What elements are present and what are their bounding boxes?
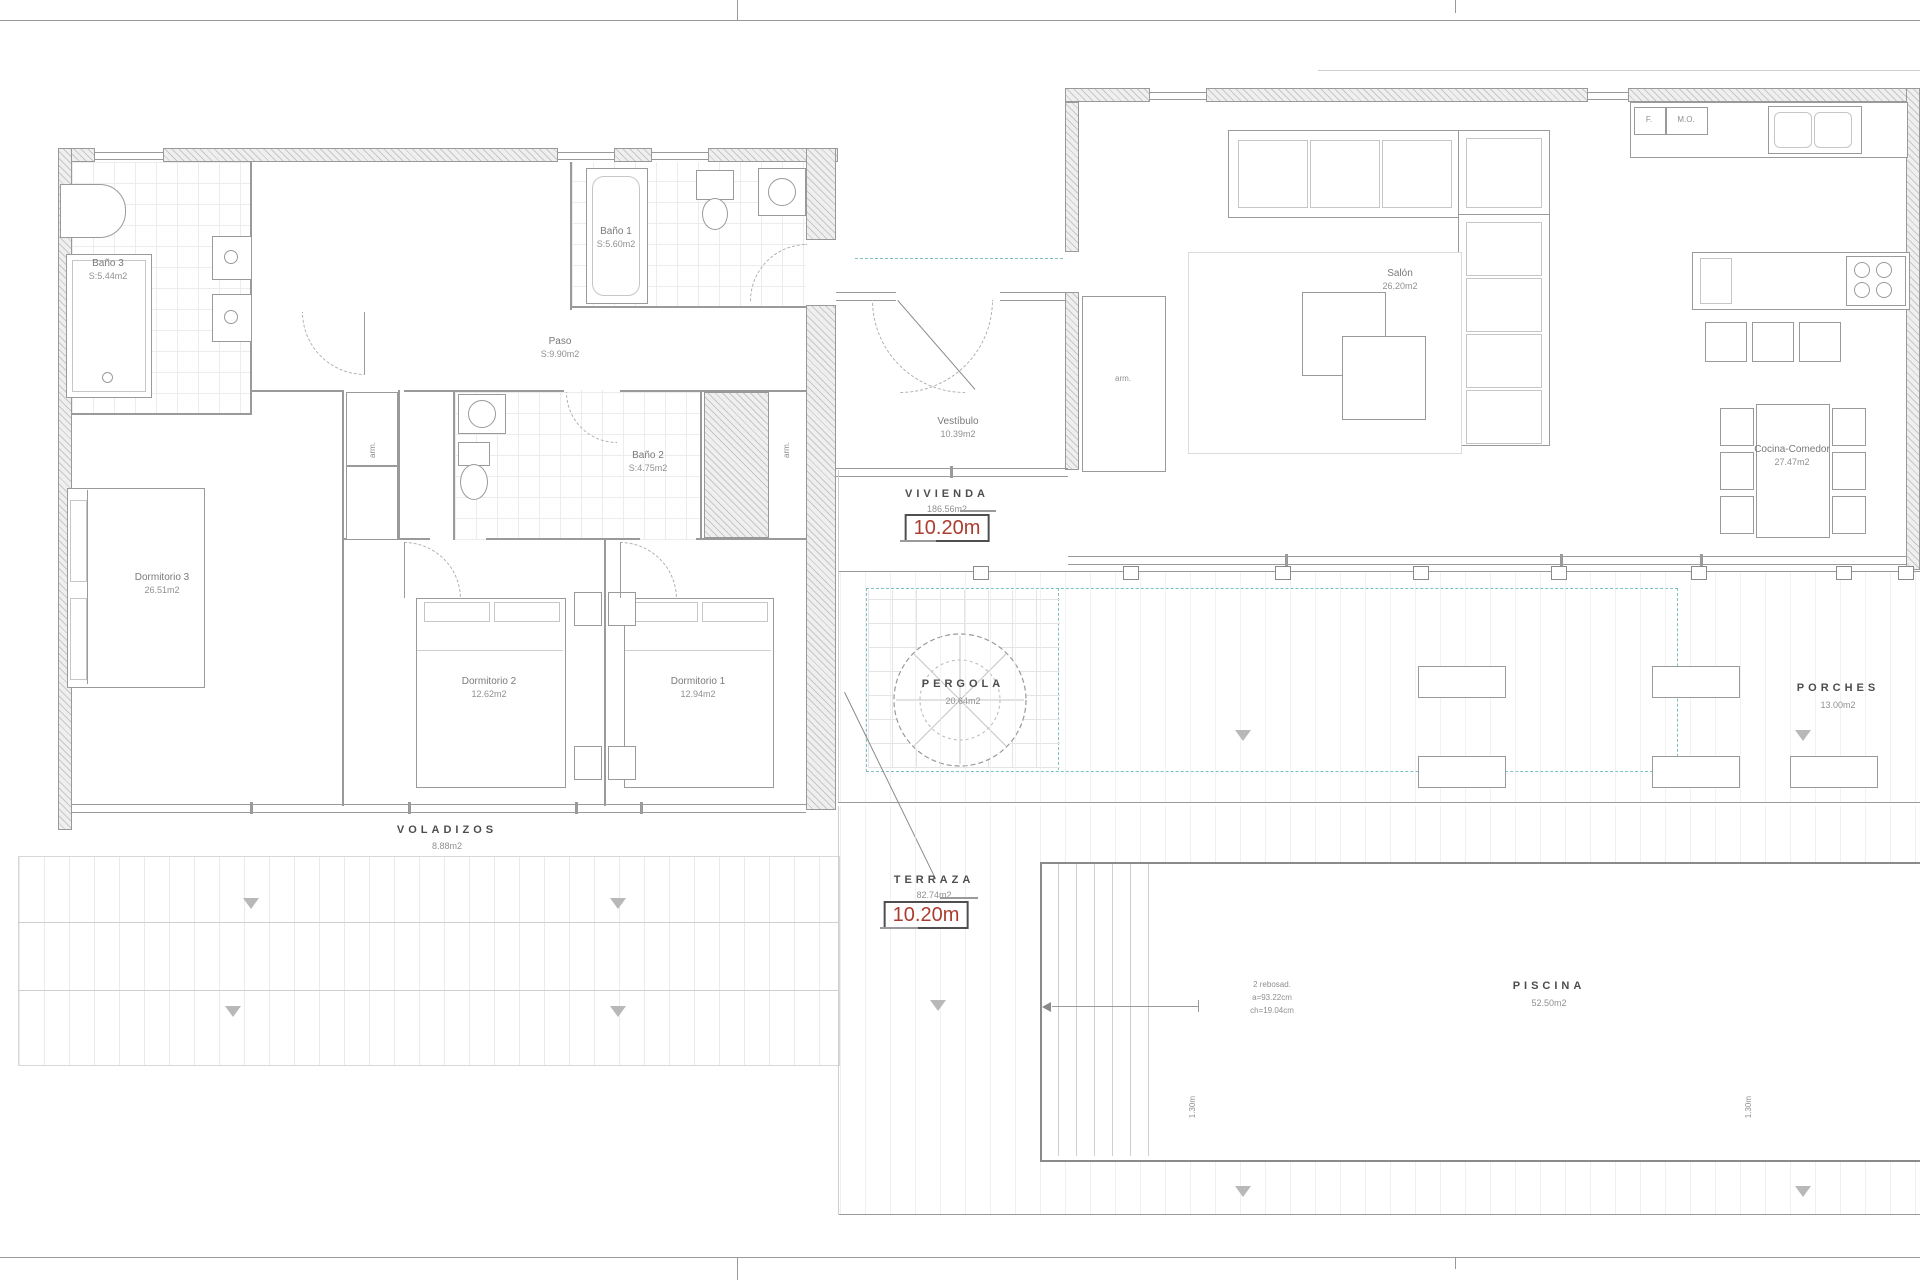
dimension-tick: [900, 540, 936, 542]
sliding-door: [72, 804, 806, 813]
triangle-marker-icon: [930, 1000, 946, 1011]
frame-line-bottom: [0, 1257, 1920, 1258]
hob-burner: [1876, 282, 1892, 298]
column: [1691, 566, 1707, 580]
pool-step: [1076, 864, 1077, 1156]
window: [1588, 92, 1628, 100]
zone-area-piscina: 52.50m2: [1531, 998, 1566, 1008]
triangle-marker-icon: [610, 1006, 626, 1017]
dashed-boundary: [855, 258, 1063, 260]
panel-mark: [1418, 756, 1506, 788]
interior-wall: [486, 538, 640, 540]
cushion: [1310, 140, 1380, 208]
column: [973, 566, 989, 580]
porch-edge: [838, 802, 1920, 803]
pool-note-line: [1052, 1006, 1198, 1007]
triangle-marker-icon: [1795, 1186, 1811, 1197]
porch-edge: [838, 470, 839, 802]
pillow: [424, 602, 490, 622]
pool-step: [1094, 864, 1095, 1156]
panel-mark: [1652, 756, 1740, 788]
mullion: [950, 466, 953, 478]
triangle-marker-icon: [1795, 730, 1811, 741]
wall-segment: [1065, 102, 1079, 252]
dimension-tick: [960, 510, 996, 512]
mullion: [1285, 554, 1288, 566]
island-sink: [1700, 258, 1732, 304]
interior-wall: [570, 162, 572, 310]
toilet: [696, 170, 734, 200]
wall-segment: [806, 305, 836, 810]
column: [1123, 566, 1139, 580]
toilet-bowl: [224, 250, 238, 264]
door-swing: [620, 542, 677, 599]
door-leaf: [404, 542, 405, 598]
interior-wall: [250, 162, 252, 415]
panel-mark: [1418, 666, 1506, 698]
dimension-tick: [880, 927, 918, 929]
stool: [1752, 322, 1794, 362]
floor-plan-canvas: arm. arm. Baño 3S:5.44m2 Baño 1S:5.60m2 …: [0, 0, 1920, 1280]
fridge-label: F.: [1646, 113, 1652, 126]
zone-label-voladizos: VOLADIZOS: [397, 824, 497, 836]
triangle-marker-icon: [1235, 730, 1251, 741]
washbasin-bowl: [468, 400, 496, 428]
wall-segment: [1628, 88, 1920, 102]
pillow: [70, 500, 87, 582]
pillow: [702, 602, 768, 622]
mullion: [640, 802, 643, 814]
mullion: [250, 802, 253, 814]
room-label-paso: PasoS:9.90m2: [541, 336, 580, 360]
wall-segment: [163, 148, 558, 162]
mullion: [1700, 554, 1703, 566]
pillow: [70, 598, 87, 680]
pool-depth-mark: 1.30m: [1742, 1096, 1755, 1118]
room-label-bano1: Baño 1S:5.60m2: [597, 226, 636, 250]
triangle-marker-icon: [1235, 1186, 1251, 1197]
deck: [18, 856, 840, 1066]
cushion: [1466, 138, 1542, 208]
cushion: [1382, 140, 1452, 208]
zone-area-vivienda: 186.56m2: [927, 504, 967, 514]
dimension-tick: [940, 897, 978, 899]
room-label-dorm1: Dormitorio 112.94m2: [671, 676, 725, 700]
room-label-bano2: Baño 2S:4.75m2: [629, 450, 668, 474]
interior-wall: [72, 413, 252, 415]
bed-fold-line: [625, 650, 771, 651]
hob-burner: [1854, 262, 1870, 278]
toilet: [458, 442, 490, 466]
interior-wall: [342, 390, 344, 806]
pool-step: [1148, 864, 1149, 1156]
chair: [1832, 496, 1866, 534]
triangle-marker-icon: [243, 898, 259, 909]
coffee-table: [1342, 336, 1426, 420]
pillow: [632, 602, 698, 622]
hob: [1846, 256, 1906, 306]
door-leaf: [620, 542, 621, 598]
panel-mark: [1652, 666, 1740, 698]
panel-mark: [1790, 756, 1878, 788]
terrace-edge: [838, 806, 839, 1215]
zone-label-terraza: TERRAZA: [894, 874, 975, 886]
chair: [1720, 496, 1754, 534]
triangle-marker-icon: [225, 1006, 241, 1017]
bidet-bowl: [224, 310, 238, 324]
door-swing: [302, 312, 365, 375]
pool-step: [1112, 864, 1113, 1156]
window: [1150, 92, 1206, 100]
bed-headboard: [87, 490, 88, 684]
terrace-edge: [838, 1214, 1920, 1215]
pillow: [494, 602, 560, 622]
cushion: [1466, 390, 1542, 444]
interior-wall: [572, 306, 806, 308]
pool-note-tick: [1198, 1000, 1199, 1012]
arrow-icon: [1042, 1002, 1051, 1012]
chair: [1832, 452, 1866, 490]
deck-joint: [18, 990, 838, 991]
frame-tick: [1455, 0, 1456, 13]
closet-label: arm.: [366, 442, 379, 458]
sliding-door: [1068, 556, 1906, 565]
door-swing: [900, 300, 993, 393]
interior-wall: [700, 390, 702, 540]
chair: [1832, 408, 1866, 446]
cushion: [1466, 278, 1542, 332]
window: [652, 152, 708, 160]
chair: [1720, 452, 1754, 490]
room-label-vestibulo: Vestíbulo10.39m2: [937, 416, 978, 440]
dining-table: [1756, 404, 1830, 538]
zone-label-vivienda: VIVIENDA: [905, 488, 989, 500]
toilet-bowl: [702, 198, 728, 230]
frame-tick: [1455, 1257, 1456, 1269]
porch-edge: [838, 571, 1920, 572]
wall-vestibule: [1000, 292, 1066, 301]
room-label-dorm3: Dormitorio 326.51m2: [135, 572, 189, 596]
nightstand: [608, 746, 636, 780]
mullion: [575, 802, 578, 814]
interior-wall: [398, 390, 400, 540]
deck-joint: [18, 922, 838, 923]
washbasin: [60, 184, 126, 238]
pool-step: [1130, 864, 1131, 1156]
washbasin-bowl: [768, 178, 796, 206]
window: [558, 152, 614, 160]
hob-burner: [1876, 262, 1892, 278]
interior-wall: [404, 390, 564, 392]
roof-overhang-line: [1318, 70, 1920, 71]
nightstand: [574, 592, 602, 626]
wall-segment: [1065, 88, 1150, 102]
room-label-bano3: Baño 3S:5.44m2: [89, 258, 128, 282]
cushion: [1466, 222, 1542, 276]
column: [1898, 566, 1914, 580]
pool-note: 2 rebosad. a=93.22cm ch=19.04cm: [1250, 978, 1294, 1017]
nightstand: [574, 746, 602, 780]
dimension-box: 10.20m: [884, 901, 969, 929]
window: [95, 152, 163, 160]
pool-depth-mark: 1.30m: [1186, 1096, 1199, 1118]
interior-wall: [453, 390, 455, 540]
stool: [1799, 322, 1841, 362]
zone-label-porches: PORCHES: [1797, 682, 1879, 694]
wall-segment: [806, 148, 836, 240]
frame-tick: [737, 0, 738, 20]
wall-segment: [1906, 88, 1920, 570]
pool-step: [1058, 864, 1059, 1156]
dimension-box: 10.20m: [905, 514, 990, 542]
door-leaf: [364, 312, 365, 374]
mullion: [408, 802, 411, 814]
bed-fold-line: [417, 650, 563, 651]
wall-segment: [1065, 292, 1079, 470]
interior-wall: [696, 538, 806, 540]
porch-deck: [840, 572, 1920, 802]
pool: [1040, 862, 1920, 1162]
frame-line-top: [0, 20, 1920, 21]
closet-label: arm.: [780, 442, 793, 458]
wardrobe: [346, 466, 398, 540]
wall-segment: [614, 148, 652, 162]
microwave-label: M.O.: [1677, 113, 1694, 126]
door-swing: [404, 542, 461, 599]
closet-label: arm.: [1115, 372, 1131, 385]
interior-wall: [604, 538, 606, 806]
zone-label-piscina: PISCINA: [1513, 980, 1586, 992]
zone-area-voladizos: 8.88m2: [432, 841, 462, 851]
stool: [1705, 322, 1747, 362]
cushion: [1238, 140, 1308, 208]
column: [1413, 566, 1429, 580]
toilet-bowl: [460, 464, 488, 500]
room-label-salon: Salón26.20m2: [1382, 268, 1417, 292]
wardrobe: [704, 392, 769, 538]
sink-bowl: [1774, 112, 1812, 148]
column: [1551, 566, 1567, 580]
wall-segment: [1206, 88, 1588, 102]
cushion: [1466, 334, 1542, 388]
column: [1275, 566, 1291, 580]
column: [1836, 566, 1852, 580]
room-label-cocina: Cocina-Comedor27.47m2: [1754, 444, 1830, 468]
mullion: [1560, 554, 1563, 566]
room-label-dorm2: Dormitorio 212.62m2: [462, 676, 516, 700]
sink-bowl: [1814, 112, 1852, 148]
chair: [1720, 408, 1754, 446]
interior-wall: [252, 390, 344, 392]
frame-tick: [737, 1257, 738, 1280]
zone-area-porches: 13.00m2: [1820, 700, 1855, 710]
shower-drain: [102, 372, 113, 383]
hob-burner: [1854, 282, 1870, 298]
triangle-marker-icon: [610, 898, 626, 909]
